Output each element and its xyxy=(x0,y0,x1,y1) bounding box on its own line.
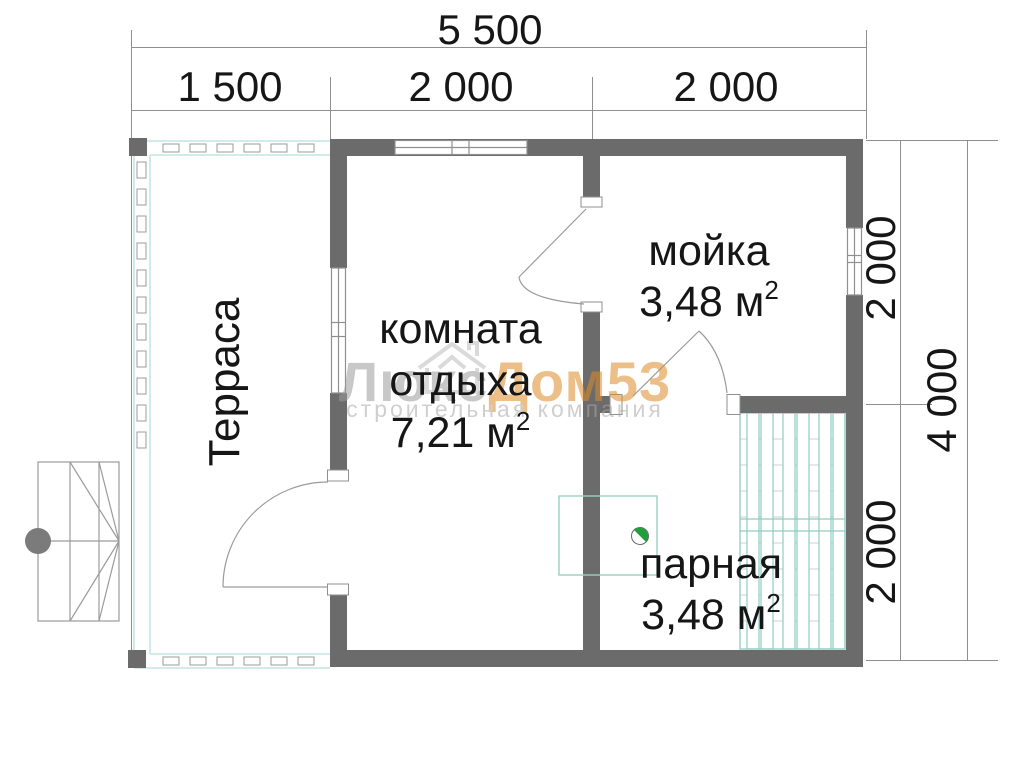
dim-top-2000-a: 2 000 xyxy=(361,63,561,111)
washing-area: 3,48 м2 xyxy=(604,277,814,328)
room-label-rest-room: комната отдыха 7,21 м2 xyxy=(328,303,593,459)
dim-top-1500: 1 500 xyxy=(130,63,330,111)
dim-right-2000-b: 2 000 xyxy=(857,452,903,652)
floor-plan: ЛюксДом53 строительная компания 5 500 1 … xyxy=(0,0,1010,758)
dim-total-right: 4 000 xyxy=(918,300,964,500)
room-label-washing: мойка 3,48 м2 xyxy=(604,226,814,328)
steam-area: 3,48 м2 xyxy=(606,590,816,641)
room-label-terrace: Терраса xyxy=(200,272,248,492)
door-washing-steam xyxy=(633,331,727,396)
rest-room-name-line2: отдыха xyxy=(328,355,593,407)
washing-name: мойка xyxy=(604,226,814,277)
room-label-steam: парная 3,48 м2 xyxy=(606,539,816,641)
door-entrance xyxy=(223,482,328,587)
rest-room-name-line1: комната xyxy=(328,303,593,355)
rest-room-area: 7,21 м2 xyxy=(328,407,593,459)
entrance-steps xyxy=(25,462,119,621)
steam-name: парная xyxy=(606,539,816,590)
dim-total-top: 5 500 xyxy=(390,6,590,54)
door-restroom-washing xyxy=(519,209,586,304)
dim-top-2000-b: 2 000 xyxy=(626,63,826,111)
post-marker xyxy=(25,528,51,554)
dim-right-2000-a: 2 000 xyxy=(857,168,903,368)
